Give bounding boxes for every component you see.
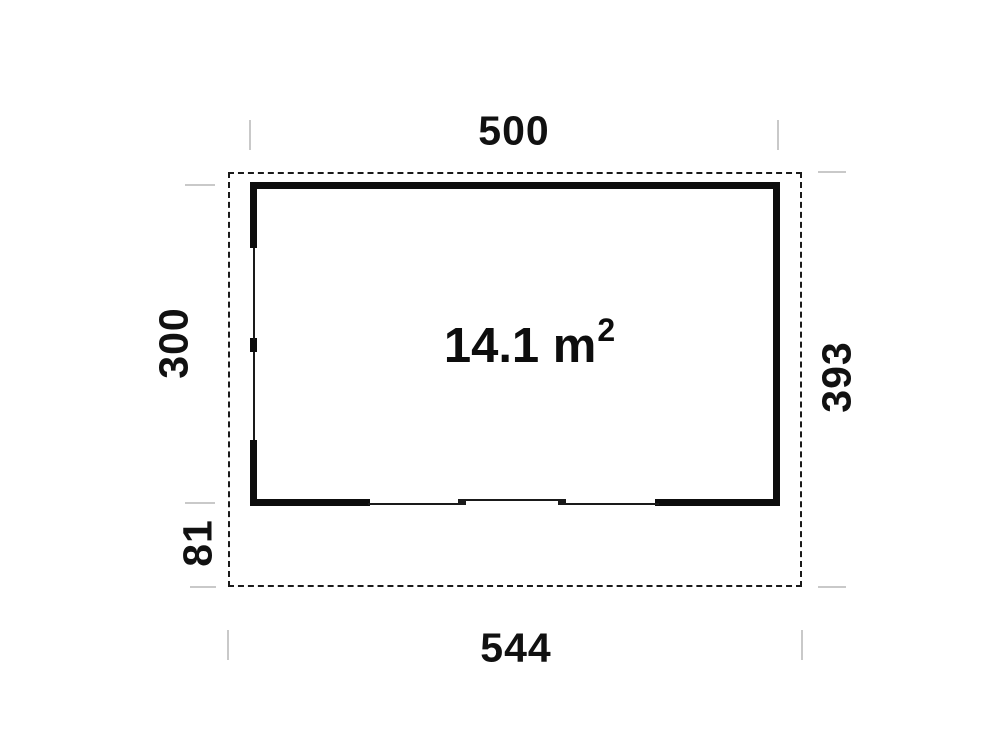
door-junction-cap-right — [558, 499, 566, 505]
area-label: 14.1 m2 — [444, 316, 614, 374]
extension-tick-top-right — [777, 120, 779, 150]
area-superscript: 2 — [597, 312, 615, 348]
floor-plan-canvas: 500 300 393 81 544 14.1 m2 — [0, 0, 1000, 750]
extension-tick-right-bottom — [818, 586, 846, 588]
area-value: 14.1 m — [444, 319, 597, 373]
extension-tick-top-left — [249, 120, 251, 150]
door-line-bottom-right — [562, 503, 659, 505]
extension-tick-left-wall-bottom — [185, 502, 215, 504]
dashed-boundary-outline — [228, 172, 802, 587]
dimension-label-total-height: 393 — [814, 341, 861, 412]
wall-top — [250, 182, 780, 189]
door-line-bottom-center — [461, 499, 566, 501]
wall-bottom-segment-left — [250, 499, 370, 506]
door-line-bottom-left — [368, 503, 465, 505]
extension-tick-bottom-left — [227, 630, 229, 660]
dimension-label-wall-height: 300 — [151, 307, 198, 378]
extension-tick-bottom-right — [801, 630, 803, 660]
window-line-left-lower — [253, 352, 255, 440]
dimension-label-porch-depth: 81 — [175, 519, 222, 567]
wall-bottom-segment-right — [655, 499, 780, 506]
extension-tick-left-porch — [190, 586, 216, 588]
wall-left-segment-top — [250, 182, 257, 248]
dimension-label-wall-width: 500 — [478, 108, 549, 155]
extension-tick-left-wall-top — [185, 184, 215, 186]
extension-tick-right-top — [818, 171, 846, 173]
dimension-label-total-width: 544 — [480, 625, 551, 672]
wall-left-segment-middle — [250, 338, 257, 352]
window-line-left-upper — [253, 248, 255, 340]
wall-right — [773, 182, 780, 506]
door-junction-cap-left — [458, 499, 466, 505]
wall-left-segment-bottom — [250, 440, 257, 506]
